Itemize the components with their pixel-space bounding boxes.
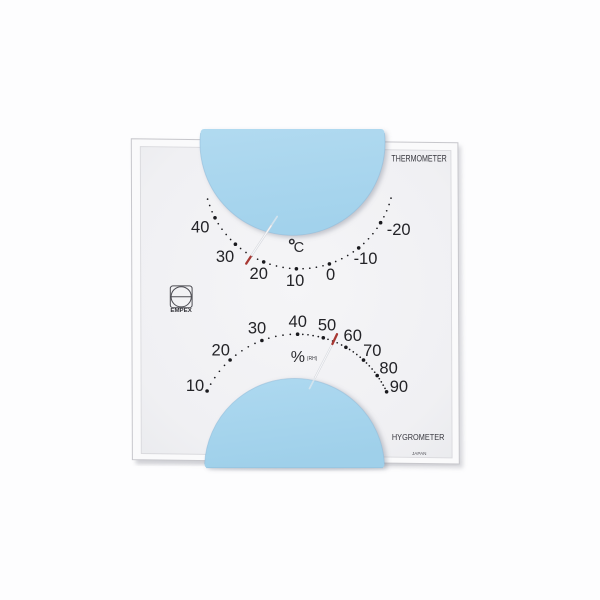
svg-text:20: 20 xyxy=(250,265,268,283)
svg-text:-20: -20 xyxy=(387,221,411,239)
svg-text:70: 70 xyxy=(363,342,381,360)
svg-text:JAPAN: JAPAN xyxy=(412,451,427,457)
svg-text:C: C xyxy=(294,240,305,256)
svg-text:20: 20 xyxy=(212,342,230,360)
svg-text:90: 90 xyxy=(390,378,408,396)
svg-text:30: 30 xyxy=(216,248,234,266)
svg-text:40: 40 xyxy=(191,218,209,236)
svg-text:THERMOMETER: THERMOMETER xyxy=(391,153,447,163)
svg-text:10: 10 xyxy=(286,272,304,290)
svg-text:(RH): (RH) xyxy=(307,356,318,362)
svg-text:%: % xyxy=(291,349,305,366)
svg-text:30: 30 xyxy=(248,319,266,337)
svg-text:80: 80 xyxy=(379,359,397,377)
svg-text:EMPEX: EMPEX xyxy=(170,308,192,314)
svg-text:40: 40 xyxy=(289,313,307,331)
svg-text:-10: -10 xyxy=(354,250,378,268)
svg-text:50: 50 xyxy=(318,317,336,335)
svg-text:0: 0 xyxy=(326,266,335,284)
svg-text:HYGROMETER: HYGROMETER xyxy=(392,433,445,442)
svg-text:10: 10 xyxy=(186,377,204,395)
svg-text:60: 60 xyxy=(344,327,362,345)
